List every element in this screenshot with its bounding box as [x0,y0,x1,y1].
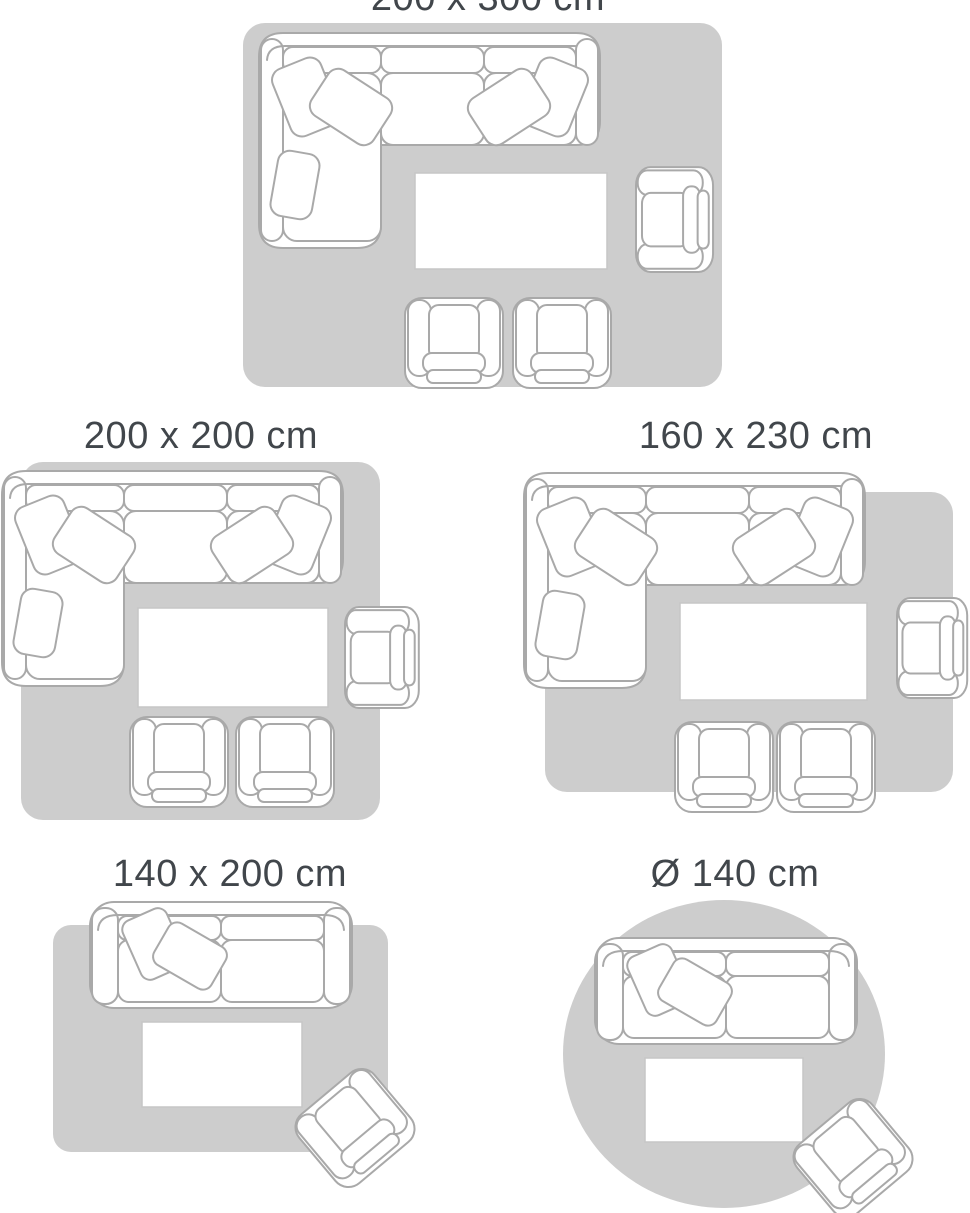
size-guide-illustration [0,0,970,1213]
coffee-table [680,603,867,700]
armchair-side [345,607,419,708]
loveseat-sofa [595,938,857,1044]
armchair-left [675,722,773,812]
coffee-table [645,1058,803,1142]
armchair-left [405,298,503,388]
armchair-right [513,298,611,388]
coffee-table [415,173,607,269]
diagram-160x230 [524,473,967,812]
armchair-side [636,167,713,272]
armchair-left [130,717,228,807]
coffee-table [142,1022,302,1107]
diagram-200x200 [2,462,419,820]
diagram-200x300 [243,23,722,388]
armchair-right [777,722,875,812]
loveseat-sofa [90,902,352,1008]
armchair-right [236,717,334,807]
coffee-table [138,608,328,707]
diagram-d140 [563,900,919,1213]
rug-size-guide: 200 x 300 cm 200 x 200 cm 160 x 230 cm 1… [0,0,970,1213]
armchair-side [897,598,967,698]
diagram-140x200 [53,902,421,1194]
